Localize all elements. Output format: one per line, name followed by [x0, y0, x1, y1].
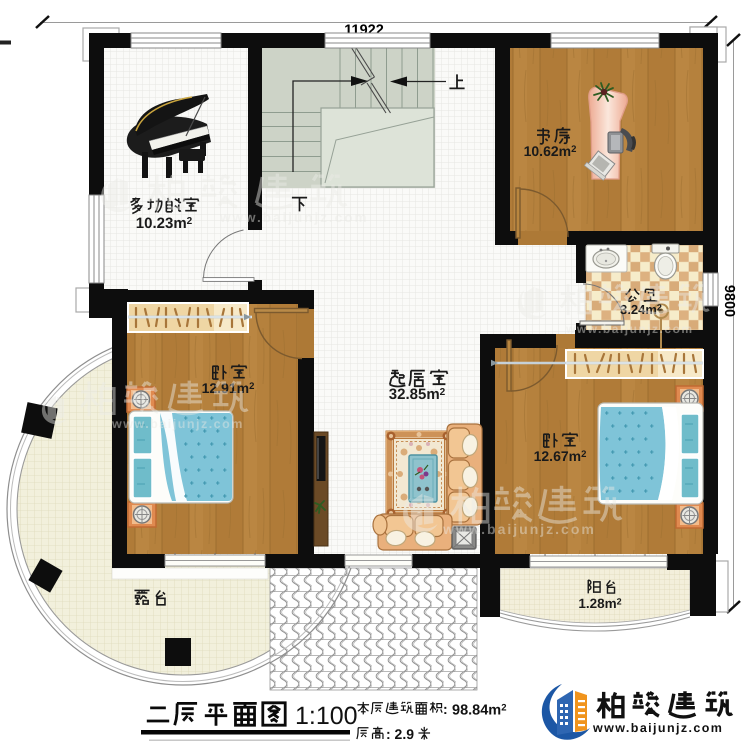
- svg-text:10.62m2: 10.62m2: [524, 143, 577, 159]
- svg-text:1.28m2: 1.28m2: [578, 596, 621, 611]
- svg-text:www.baijunjz.com: www.baijunjz.com: [442, 521, 596, 537]
- svg-text:: 2.9: : 2.9: [386, 726, 414, 742]
- svg-text:www.baijunjz.com: www.baijunjz.com: [565, 322, 694, 336]
- svg-text:www.baijunjz.com: www.baijunjz.com: [592, 721, 723, 735]
- svg-text:www.baijunjz.com: www.baijunjz.com: [111, 417, 244, 431]
- svg-text:32.85m2: 32.85m2: [389, 386, 446, 403]
- svg-text::: :: [443, 701, 448, 717]
- svg-text:12.91m2: 12.91m2: [202, 380, 255, 396]
- svg-text:1:100: 1:100: [295, 702, 358, 730]
- svg-text:9800: 9800: [721, 285, 737, 317]
- svg-text:www.baijunjz.com: www.baijunjz.com: [219, 210, 369, 225]
- svg-text:12.67m2: 12.67m2: [534, 448, 587, 464]
- svg-text:10.23m2: 10.23m2: [136, 215, 193, 232]
- svg-text:98.84m2: 98.84m2: [452, 703, 506, 719]
